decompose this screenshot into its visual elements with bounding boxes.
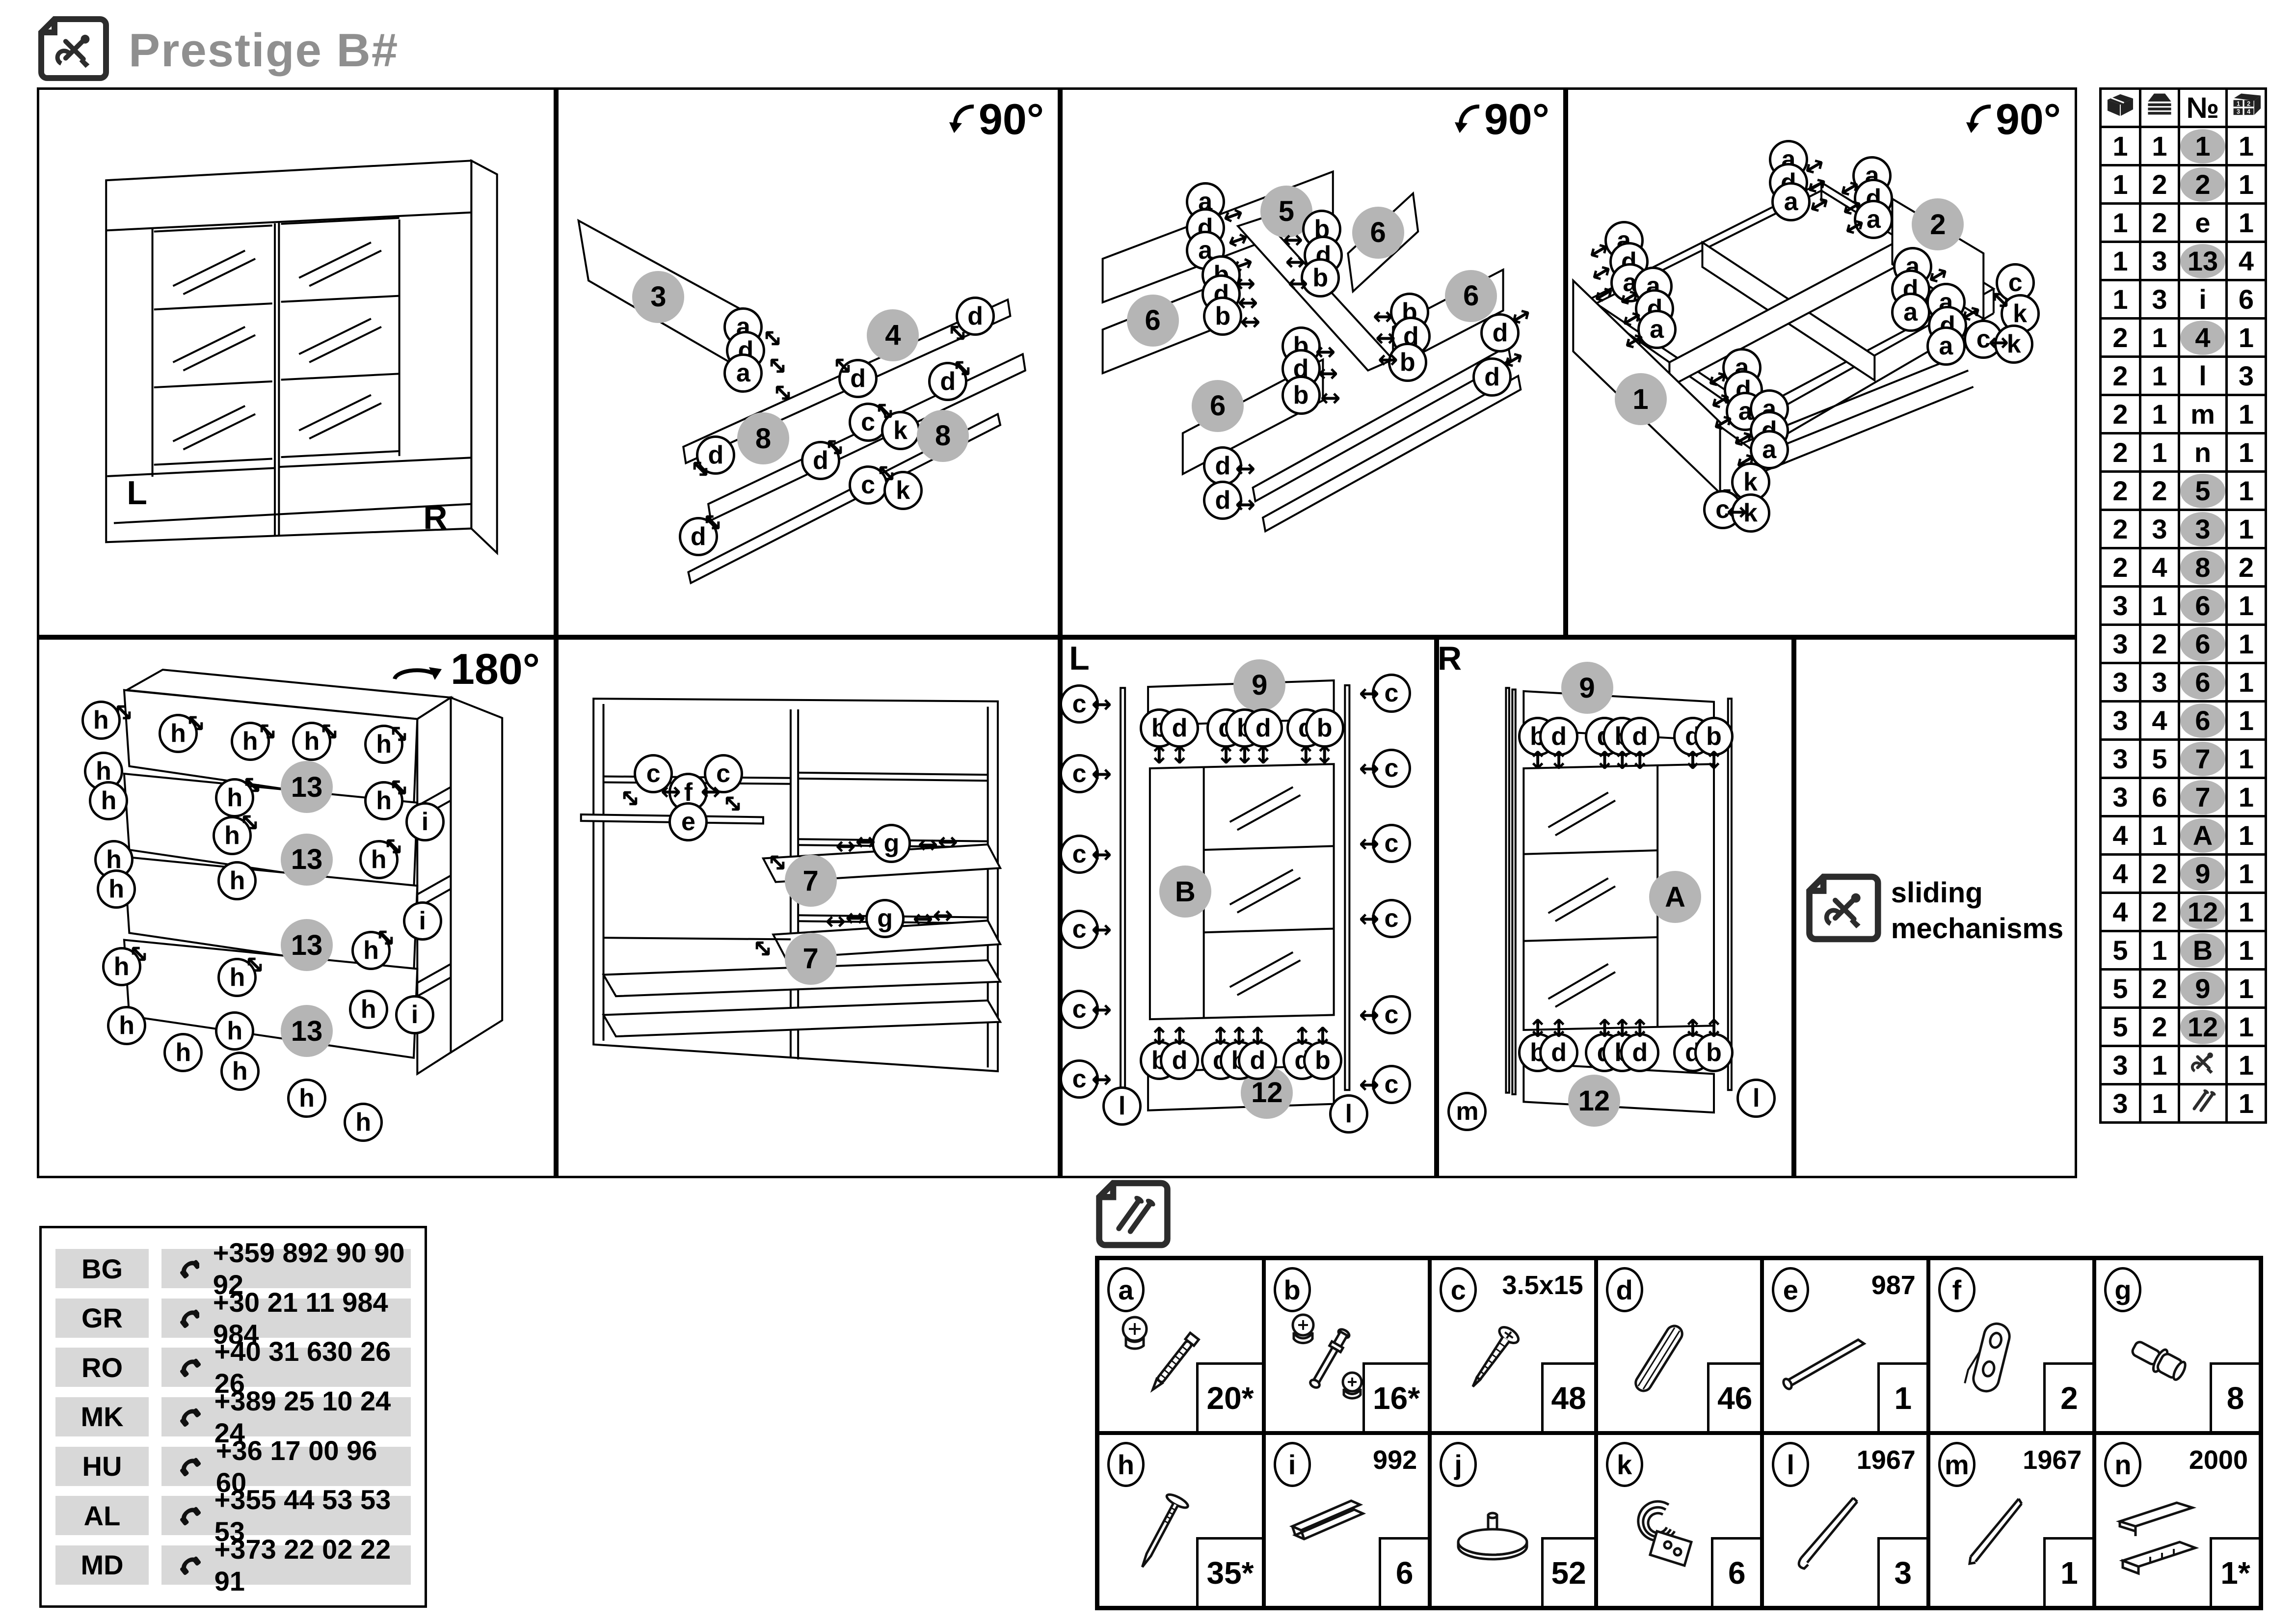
rotation-label: 180° — [391, 648, 540, 691]
circled-panel-number: 13 — [2180, 244, 2225, 278]
legend-row: 41A1 — [2101, 816, 2266, 855]
legend-box-count: 3 — [2101, 1084, 2140, 1123]
legend-row: 12e1 — [2101, 204, 2266, 242]
direction-arrow-icon: ↕ — [1216, 741, 1236, 769]
legend-box-count: 3 — [2101, 1046, 2140, 1084]
legend-sheet-number: 6 — [2140, 778, 2179, 816]
screws-document-icon — [1091, 1179, 1175, 1249]
direction-arrow-icon: ↕ — [1682, 1014, 1703, 1043]
legend-quantity: 1 — [2227, 472, 2266, 510]
hardware-letter-badge: c — [1440, 1267, 1477, 1312]
hardware-ref-badge: m — [1447, 1092, 1487, 1131]
legend-row: 311 — [2101, 1084, 2266, 1123]
legend-box-count: 4 — [2101, 893, 2140, 931]
hardware-quantity: 52 — [1541, 1537, 1594, 1606]
legend-sheet-number: 2 — [2140, 472, 2179, 510]
part-ref-badge: 13 — [281, 761, 333, 813]
part-ref-badge: 7 — [785, 855, 837, 907]
wardrobe-front-drawing — [39, 90, 554, 635]
hardware-size: 987 — [1871, 1270, 1916, 1300]
direction-arrow-icon: ↕ — [1229, 1022, 1250, 1051]
legend-quantity: 1 — [2227, 778, 2266, 816]
hardware-ref-badge: h — [89, 781, 128, 820]
hardware-ref-badge: h — [349, 990, 388, 1029]
hardware-ref-badge: l — [1329, 1094, 1368, 1134]
legend-quantity: 1 — [2227, 625, 2266, 663]
legend-row: 2251 — [2101, 472, 2266, 510]
legend-sheet-number: 4 — [2140, 548, 2179, 587]
legend-quantity: 1 — [2227, 855, 2266, 893]
legend-quantity: 1 — [2227, 587, 2266, 625]
legend-part-number: 12 — [2179, 893, 2227, 931]
direction-arrow-icon: ↕ — [1527, 746, 1548, 775]
hardware-quantity: 48 — [1541, 1362, 1594, 1431]
phone-icon — [177, 1305, 199, 1331]
country-code: AL — [55, 1496, 149, 1535]
part-ref-badge: 6 — [1127, 295, 1179, 347]
legend-sheet-number: 2 — [2140, 1008, 2179, 1046]
phone-icon — [177, 1454, 202, 1479]
hardware-quantity: 3 — [1877, 1537, 1926, 1606]
hardware-quantity: 35* — [1196, 1537, 1261, 1606]
hardware-quantity: 20* — [1196, 1362, 1261, 1431]
phone-icon — [177, 1404, 201, 1430]
hardware-letter-badge: k — [1606, 1442, 1643, 1487]
legend-sheet-number: 1 — [2140, 127, 2179, 165]
legend-sheet-number: 3 — [2140, 280, 2179, 319]
legend-sheet-number: 2 — [2140, 165, 2179, 204]
circled-panel-number: 12 — [2180, 1010, 2225, 1044]
rotation-label: 90° — [1965, 98, 2061, 146]
legend-box-count: 1 — [2101, 280, 2140, 319]
part-ref-badge: 9 — [1561, 662, 1613, 714]
phone-number: +373 22 02 22 91 — [161, 1545, 411, 1585]
number-column-header: № — [2179, 89, 2227, 127]
legend-box-count: 1 — [2101, 204, 2140, 242]
legend-quantity: 1 — [2227, 931, 2266, 970]
interior-drawing — [559, 640, 1058, 1176]
hardware-ref-badge: a — [723, 353, 763, 393]
phone-row: AL+355 44 53 53 53 — [55, 1496, 411, 1535]
legend-row: 3261 — [2101, 625, 2266, 663]
part-ref-badge: 13 — [281, 834, 333, 886]
legend-part-number: 7 — [2179, 778, 2227, 816]
phone-number: +355 44 53 53 53 — [161, 1496, 411, 1535]
direction-arrow-icon: ↔ — [1287, 269, 1308, 298]
screws-icon — [2189, 1086, 2217, 1114]
legend-sheet-number: 1 — [2140, 357, 2179, 395]
circled-panel-number: 6 — [2180, 704, 2225, 738]
panel-label: R — [423, 498, 447, 537]
assembly-instruction-sheet: { "title": "Prestige B#", "sliding": {"l… — [0, 0, 2296, 1624]
legend-quantity: 1 — [2227, 395, 2266, 433]
hardware-size: 992 — [1373, 1445, 1417, 1475]
hardware-ref-badge: h — [107, 1006, 146, 1045]
direction-arrow-icon: ↔ — [1235, 490, 1255, 518]
hardware-cell: c3.5x1548 — [1430, 1258, 1596, 1433]
hardware-ref-badge: b — [1281, 376, 1321, 415]
legend-sheet-number: 2 — [2140, 625, 2179, 663]
direction-arrow-icon: ↔ — [1092, 1065, 1112, 1093]
legend-row: 51B1 — [2101, 931, 2266, 970]
tools-document-icon — [37, 14, 110, 83]
direction-arrow-icon: ↕ — [1149, 741, 1170, 769]
hardware-quantity: 8 — [2210, 1362, 2259, 1431]
legend-row: 3461 — [2101, 702, 2266, 740]
rotation-label: 90° — [1454, 98, 1549, 146]
package-icon — [2101, 89, 2140, 127]
country-code: HU — [55, 1447, 149, 1486]
legend-part-number: n — [2179, 433, 2227, 472]
legend-part-number — [2179, 1046, 2227, 1084]
hardware-cell: e9871 — [1762, 1258, 1928, 1433]
hardware-cell: g8 — [2094, 1258, 2261, 1433]
legend-box-count: 2 — [2101, 357, 2140, 395]
hardware-letter-badge: l — [1772, 1442, 1809, 1487]
phone-icon — [177, 1552, 201, 1578]
legend-row: 1111 — [2101, 127, 2266, 165]
legend-row: 21n1 — [2101, 433, 2266, 472]
hardware-cell: d46 — [1596, 1258, 1762, 1433]
legend-quantity: 1 — [2227, 816, 2266, 855]
legend-part-number: i — [2179, 280, 2227, 319]
phone-icon — [177, 1503, 201, 1528]
rotate-arrow-icon — [1454, 101, 1483, 146]
legend-quantity: 1 — [2227, 510, 2266, 548]
hardware-cell: i9926 — [1264, 1433, 1430, 1608]
direction-arrow-icon: ↔ — [1359, 829, 1380, 858]
direction-arrow-icon: ↕ — [1704, 746, 1724, 775]
hardware-quantity: 1 — [1877, 1362, 1926, 1431]
support-phone-list: BG+359 892 90 90 92GR+30 21 11 984 984RO… — [39, 1226, 427, 1608]
direction-arrow-icon: ↕ — [1704, 1014, 1724, 1043]
legend-sheet-number: 1 — [2140, 395, 2179, 433]
part-ref-badge: B — [1159, 866, 1211, 918]
direction-arrow-icon: ↔ — [700, 777, 721, 806]
legend-box-count: 3 — [2101, 587, 2140, 625]
hardware-ref-badge: h — [344, 1103, 383, 1142]
panel-label: L — [127, 474, 147, 512]
direction-arrow-icon: ↔ — [937, 827, 958, 856]
circled-panel-number: 7 — [2180, 780, 2225, 814]
direction-arrow-icon: ↔ — [1092, 759, 1112, 788]
phone-number: +389 25 10 24 24 — [161, 1397, 411, 1436]
phone-row: BG+359 892 90 90 92 — [55, 1249, 411, 1288]
legend-sheet-number: 4 — [2140, 702, 2179, 740]
legend-quantity: 1 — [2227, 1046, 2266, 1084]
legend-row: 3361 — [2101, 663, 2266, 702]
circled-panel-number: 2 — [2180, 167, 2225, 202]
tools-icon — [2189, 1048, 2217, 1076]
hardware-letter-badge: b — [1274, 1267, 1311, 1312]
direction-arrow-icon: ↕ — [1548, 746, 1569, 775]
hardware-cell: l19673 — [1762, 1433, 1928, 1608]
step-panel-rails: 90° 3ada↔↔↔4d↔d↔d↔ck↔88d↔d↔ck↔d↔ — [556, 87, 1060, 637]
hardware-letter-badge: d — [1606, 1267, 1643, 1312]
circled-panel-number: 9 — [2180, 857, 2225, 891]
legend-sheet-number: 3 — [2140, 242, 2179, 280]
direction-arrow-icon: ↕ — [1247, 1022, 1268, 1051]
part-ref-badge: 13 — [281, 919, 333, 971]
legend-quantity: 1 — [2227, 1084, 2266, 1123]
legend-box-count: 2 — [2101, 319, 2140, 357]
direction-arrow-icon: ↔ — [825, 907, 846, 935]
hardware-size: 2000 — [2189, 1445, 2248, 1475]
hardware-quantity: 16* — [1362, 1362, 1428, 1431]
circled-panel-number: B — [2180, 933, 2225, 968]
legend-row: 1221 — [2101, 165, 2266, 204]
legend-part-number: 3 — [2179, 510, 2227, 548]
direction-arrow-icon: ↔ — [1359, 754, 1380, 783]
legend-quantity: 4 — [2227, 242, 2266, 280]
step-panel-frame: 90° ada↔↔↔ada↔↔↔2ada↔↔↔ada↔↔↔ada↔↔ada↔↔c… — [1566, 87, 2077, 637]
hardware-letter-badge: j — [1440, 1442, 1477, 1487]
hardware-quantity: 1* — [2210, 1537, 2259, 1606]
hardware-ref-badge: i — [395, 995, 434, 1034]
legend-sheet-number: 5 — [2140, 740, 2179, 778]
country-code: RO — [55, 1348, 149, 1387]
hardware-ref-badge: h — [287, 1079, 326, 1118]
legend-quantity: 1 — [2227, 319, 2266, 357]
direction-arrow-icon: ↔ — [918, 830, 938, 859]
direction-arrow-icon: ↕ — [1296, 741, 1316, 769]
legend-quantity: 1 — [2227, 893, 2266, 931]
hardware-parts-table: a20*b16*c3.5x1548d46e9871f2g8h35*i9926j5… — [1095, 1256, 2263, 1610]
legend-quantity: 1 — [2227, 740, 2266, 778]
circled-panel-number: 5 — [2180, 474, 2225, 508]
hardware-letter-badge: i — [1274, 1442, 1311, 1487]
legend-part-number: 13 — [2179, 242, 2227, 280]
phone-number: +30 21 11 984 984 — [161, 1299, 411, 1338]
legend-header-row: № — [2101, 89, 2266, 127]
direction-arrow-icon: ↕ — [1170, 1022, 1190, 1051]
rails-drawing — [559, 90, 1058, 635]
legend-row: 52121 — [2101, 1008, 2266, 1046]
legend-box-count: 1 — [2101, 127, 2140, 165]
hardware-quantity: 6 — [1379, 1537, 1428, 1606]
phone-icon — [177, 1256, 199, 1281]
legend-sheet-number: 2 — [2140, 855, 2179, 893]
hardware-size: 1967 — [2023, 1445, 2082, 1475]
part-ref-badge: 7 — [785, 933, 837, 985]
direction-arrow-icon: ↕ — [1314, 741, 1335, 769]
part-ref-badge: 12 — [1568, 1075, 1620, 1127]
step-panel-back-panels: 180° 13131313iiihhhhhhhhhhhhhhhhhhhhhhhh… — [37, 637, 556, 1178]
hardware-letter-badge: g — [2104, 1267, 2141, 1312]
rotation-label: 90° — [948, 98, 1044, 146]
legend-box-count: 2 — [2101, 548, 2140, 587]
legend-part-number: 4 — [2179, 319, 2227, 357]
legend-box-count: 1 — [2101, 165, 2140, 204]
panel-label: L — [1069, 639, 1090, 677]
legend-row: 3671 — [2101, 778, 2266, 816]
legend-row: 311 — [2101, 1046, 2266, 1084]
phone-number: +40 31 630 26 26 — [161, 1348, 411, 1387]
legend-row: 21l3 — [2101, 357, 2266, 395]
part-ref-badge: 6 — [1192, 380, 1244, 432]
legend-box-count: 3 — [2101, 625, 2140, 663]
direction-arrow-icon: ↕ — [1629, 1014, 1650, 1043]
legend-row: 21m1 — [2101, 395, 2266, 433]
hardware-cell: k6 — [1596, 1433, 1762, 1608]
direction-arrow-icon: ↕ — [1548, 1014, 1569, 1043]
legend-sheet-number: 1 — [2140, 587, 2179, 625]
legend-part-number: 6 — [2179, 702, 2227, 740]
circled-panel-number: 6 — [2180, 627, 2225, 661]
legend-part-number: 9 — [2179, 970, 2227, 1008]
legend-box-count: 4 — [2101, 855, 2140, 893]
legend-part-number: 6 — [2179, 587, 2227, 625]
direction-arrow-icon: ↔ — [1320, 383, 1341, 412]
direction-arrow-icon: ↔ — [1240, 307, 1261, 336]
hardware-ref-badge: b — [1203, 297, 1242, 336]
direction-arrow-icon: ↔ — [1359, 904, 1380, 933]
step-panel-left-door: Lc↔c↔c↔c↔c↔c↔c↔c↔c↔c↔c↔c↔ll912Bbddbddb↕↕… — [1060, 637, 1437, 1178]
part-ref-badge: 8 — [737, 412, 789, 464]
phone-icon — [177, 1354, 201, 1380]
direction-arrow-icon: ↔ — [1378, 345, 1398, 374]
step-panel-right-door: Rml912Abddbddb↕↕↕↕↕↕↕bddbddb↕↕↕↕↕↕↕ — [1437, 637, 1794, 1178]
circled-panel-number: 4 — [2180, 321, 2225, 355]
direction-arrow-icon: ↔ — [1235, 454, 1255, 483]
circled-panel-number: A — [2180, 818, 2225, 853]
legend-part-number: 12 — [2179, 1008, 2227, 1046]
hardware-letter-badge: a — [1107, 1267, 1145, 1312]
legend-part-number: 2 — [2179, 165, 2227, 204]
country-code: GR — [55, 1299, 149, 1338]
direction-arrow-icon: ↕ — [1210, 1022, 1231, 1051]
phone-row: RO+40 31 630 26 26 — [55, 1348, 411, 1387]
hardware-ref-badge: l — [1102, 1086, 1142, 1126]
hardware-ref-badge: g — [872, 824, 911, 863]
panel-stack-icon — [2140, 89, 2179, 127]
hardware-cell: j52 — [1430, 1433, 1596, 1608]
legend-quantity: 3 — [2227, 357, 2266, 395]
hardware-cell: a20* — [1097, 1258, 1264, 1433]
legend-sheet-number: 2 — [2140, 970, 2179, 1008]
hardware-quantity: 1 — [2043, 1537, 2092, 1606]
phone-number: +359 892 90 90 92 — [161, 1249, 411, 1288]
legend-part-number: m — [2179, 395, 2227, 433]
step-panel-interior: ccfe↔↔↔↔g↔↔↔↔7↔g↔↔↔↔7↔ — [556, 637, 1060, 1178]
hardware-ref-badge: h — [97, 869, 136, 909]
hardware-letter-badge: h — [1107, 1442, 1145, 1487]
hardware-ref-badge: h — [220, 1052, 260, 1091]
direction-arrow-icon: ↕ — [1292, 1022, 1312, 1051]
legend-quantity: 1 — [2227, 1008, 2266, 1046]
direction-arrow-icon: ↔ — [1092, 995, 1112, 1024]
hardware-size: 3.5x15 — [1502, 1270, 1583, 1300]
legend-sheet-number: 1 — [2140, 433, 2179, 472]
rotate-arrow-icon — [391, 656, 450, 689]
legend-sheet-number: 1 — [2140, 1046, 2179, 1084]
legend-part-number: 6 — [2179, 625, 2227, 663]
direction-arrow-icon: ↔ — [835, 832, 856, 860]
tools-document-icon — [1805, 870, 1883, 946]
legend-box-count: 2 — [2101, 395, 2140, 433]
legend-box-count: 2 — [2101, 433, 2140, 472]
hardware-letter-badge: m — [1938, 1442, 1976, 1487]
legend-box-count: 4 — [2101, 816, 2140, 855]
legend-quantity: 1 — [2227, 204, 2266, 242]
circled-panel-number: 6 — [2180, 589, 2225, 623]
direction-arrow-icon: ↕ — [1527, 1014, 1548, 1043]
legend-quantity: 1 — [2227, 663, 2266, 702]
phone-row: GR+30 21 11 984 984 — [55, 1299, 411, 1338]
legend-box-count: 5 — [2101, 970, 2140, 1008]
country-code: MD — [55, 1545, 149, 1585]
part-ref-badge: 4 — [867, 309, 919, 361]
legend-box-count: 3 — [2101, 778, 2140, 816]
legend-box-count: 5 — [2101, 931, 2140, 970]
hardware-cell: n20001* — [2094, 1433, 2261, 1608]
legend-row: 2482 — [2101, 548, 2266, 587]
sliding-mechanisms-label: sliding mechanisms — [1891, 875, 2063, 947]
legend-part-number: B — [2179, 931, 2227, 970]
packing-legend-table: № 1111122112e11313413i6214121l321m121n12… — [2099, 87, 2267, 1124]
sliding-mechanisms-note: sliding mechanisms — [1794, 637, 2077, 1178]
circled-panel-number: 1 — [2180, 129, 2225, 163]
direction-arrow-icon: ↕ — [1629, 746, 1650, 775]
legend-row: 3161 — [2101, 587, 2266, 625]
legend-quantity: 1 — [2227, 970, 2266, 1008]
legend-part-number: 6 — [2179, 663, 2227, 702]
legend-part-number: 8 — [2179, 548, 2227, 587]
part-ref-badge: A — [1649, 871, 1701, 923]
circled-panel-number: 7 — [2180, 742, 2225, 776]
legend-sheet-number: 1 — [2140, 816, 2179, 855]
hardware-quantity: 2 — [2043, 1362, 2092, 1431]
legend-row: 3571 — [2101, 740, 2266, 778]
legend-box-count: 3 — [2101, 663, 2140, 702]
legend-box-count: 3 — [2101, 740, 2140, 778]
direction-arrow-icon: ↔ — [1092, 690, 1112, 718]
hardware-ref-badge: i — [403, 901, 442, 941]
country-code: BG — [55, 1249, 149, 1288]
legend-quantity: 1 — [2227, 433, 2266, 472]
legend-sheet-number: 2 — [2140, 204, 2179, 242]
direction-arrow-icon: ↔ — [912, 904, 933, 933]
part-ref-badge: 13 — [281, 1005, 333, 1057]
direction-arrow-icon: ↔ — [661, 777, 681, 806]
hardware-size: 1967 — [1857, 1445, 1916, 1475]
hardware-ref-badge: h — [163, 1033, 203, 1072]
legend-row: 5291 — [2101, 970, 2266, 1008]
step-panel-dividers: 90° ada5bdb6↔↔↔↔↔↔bdb↔↔↔66bdb↔↔↔d↔d↔bdb↔… — [1060, 87, 1566, 637]
legend-row: 13i6 — [2101, 280, 2266, 319]
hardware-ref-badge: i — [405, 802, 445, 841]
hardware-ref-badge: g — [865, 899, 905, 938]
legend-row: 2331 — [2101, 510, 2266, 548]
phone-row: MD+373 22 02 22 91 — [55, 1545, 411, 1585]
direction-arrow-icon: ↕ — [1682, 746, 1703, 775]
hardware-cell: f2 — [1928, 1258, 2095, 1433]
direction-arrow-icon: ↕ — [1170, 741, 1190, 769]
rotate-arrow-icon — [1965, 101, 1995, 146]
hardware-quantity: 6 — [1711, 1537, 1760, 1606]
direction-arrow-icon: ↕ — [1312, 1022, 1333, 1051]
part-ref-badge: 3 — [632, 271, 684, 323]
circled-panel-number: 6 — [2180, 665, 2225, 700]
hardware-ref-badge: l — [1736, 1079, 1776, 1118]
part-ref-badge: 6 — [1352, 207, 1404, 259]
legend-part-number: l — [2179, 357, 2227, 395]
legend-box-count: 2 — [2101, 510, 2140, 548]
direction-arrow-icon: ↕ — [1253, 741, 1274, 769]
page-title: Prestige B# — [129, 24, 399, 78]
legend-sheet-number: 1 — [2140, 319, 2179, 357]
direction-arrow-icon: ↔ — [933, 901, 953, 929]
